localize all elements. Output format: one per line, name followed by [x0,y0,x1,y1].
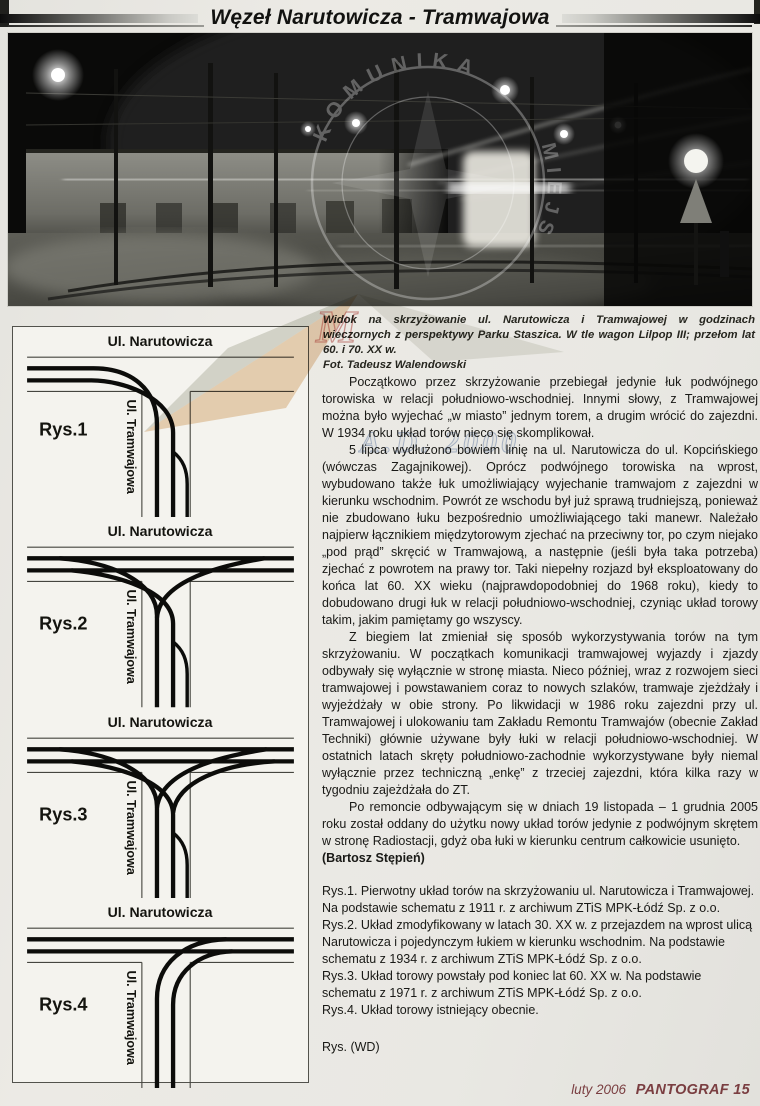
figure-note: Rys.1. Pierwotny układ torów na skrzyżow… [322,883,758,917]
magazine-page: Węzeł Narutowicza - Tramwajowa [0,0,760,1106]
page-footer: luty 2006 PANTOGRAF 15 [571,1082,750,1098]
figure-label: Rys.4 [39,995,87,1015]
street-label-narutowicza: Ul. Narutowicza [108,333,213,349]
street-label-tramwajowa: Ul. Tramwajowa [124,399,138,494]
article-paragraph: Z biegiem lat zmieniał się sposób wykorz… [322,629,758,799]
figure-note: Rys.3. Układ torowy powstały pod koniec … [322,968,758,1002]
figure-label: Rys.2 [39,614,87,634]
street-label-tramwajowa: Ul. Tramwajowa [124,970,138,1065]
article-paragraph: 5 lipca wydłużono bowiem linię na ul. Na… [322,442,758,629]
street-label-narutowicza: Ul. Narutowicza [108,904,213,920]
street-label-tramwajowa: Ul. Tramwajowa [124,780,138,875]
street-label-narutowicza: Ul. Narutowicza [108,523,213,539]
page-title: Węzeł Narutowicza - Tramwajowa [210,6,549,30]
article-paragraph: Po remoncie odbywającym się w dniach 19 … [322,799,758,850]
photo-caption-text: Widok na skrzyżowanie ul. Narutowicza i … [323,314,755,356]
diagram-rys3: Ul. Narutowicza Ul. Tramwajowa Rys.3 [13,708,308,898]
figure-note: Rys.4. Układ torowy istniejący obecnie. [322,1002,758,1019]
article-byline: (Bartosz Stępień) [322,850,758,867]
tram-light-blur [463,151,535,247]
header-rule-right [562,14,760,23]
diagram-rys2: Ul. Narutowicza Ul. Tramwajowa Rys.2 [13,517,308,707]
page-header: Węzeł Narutowicza - Tramwajowa [0,6,760,30]
diagram-rys4: Ul. Narutowicza Ul. Tramwajowa Rys.4 [13,898,308,1088]
track-diagrams-panel: Ul. Narutowicza Ul. Tramwajowa Rys.1 Ul.… [12,326,309,1083]
footer-issue-date: luty 2006 [571,1082,626,1097]
night-photo: KOMUNIKA MIEJS [8,33,752,306]
night-photo-illustration: KOMUNIKA MIEJS [8,33,752,306]
figure-note: Rys.2. Układ zmodyfikowany w latach 30. … [322,917,758,968]
article-column: Początkowo przez skrzyżowanie przebiegał… [322,374,758,1056]
figure-label: Rys.3 [39,804,87,824]
header-rule-left [0,14,198,23]
photo-caption: Widok na skrzyżowanie ul. Narutowicza i … [323,313,755,373]
drawings-credit: Rys. (WD) [322,1039,758,1056]
photo-credit: Fot. Tadeusz Walendowski [323,358,755,373]
figure-notes: Rys.1. Pierwotny układ torów na skrzyżow… [322,883,758,1019]
footer-magazine-name: PANTOGRAF 15 [636,1082,750,1098]
street-label-narutowicza: Ul. Narutowicza [108,714,213,730]
figure-label: Rys.1 [39,420,87,440]
diagram-rys1: Ul. Narutowicza Ul. Tramwajowa Rys.1 [13,327,308,517]
article-paragraph: Początkowo przez skrzyżowanie przebiegał… [322,374,758,442]
street-label-tramwajowa: Ul. Tramwajowa [124,590,138,685]
